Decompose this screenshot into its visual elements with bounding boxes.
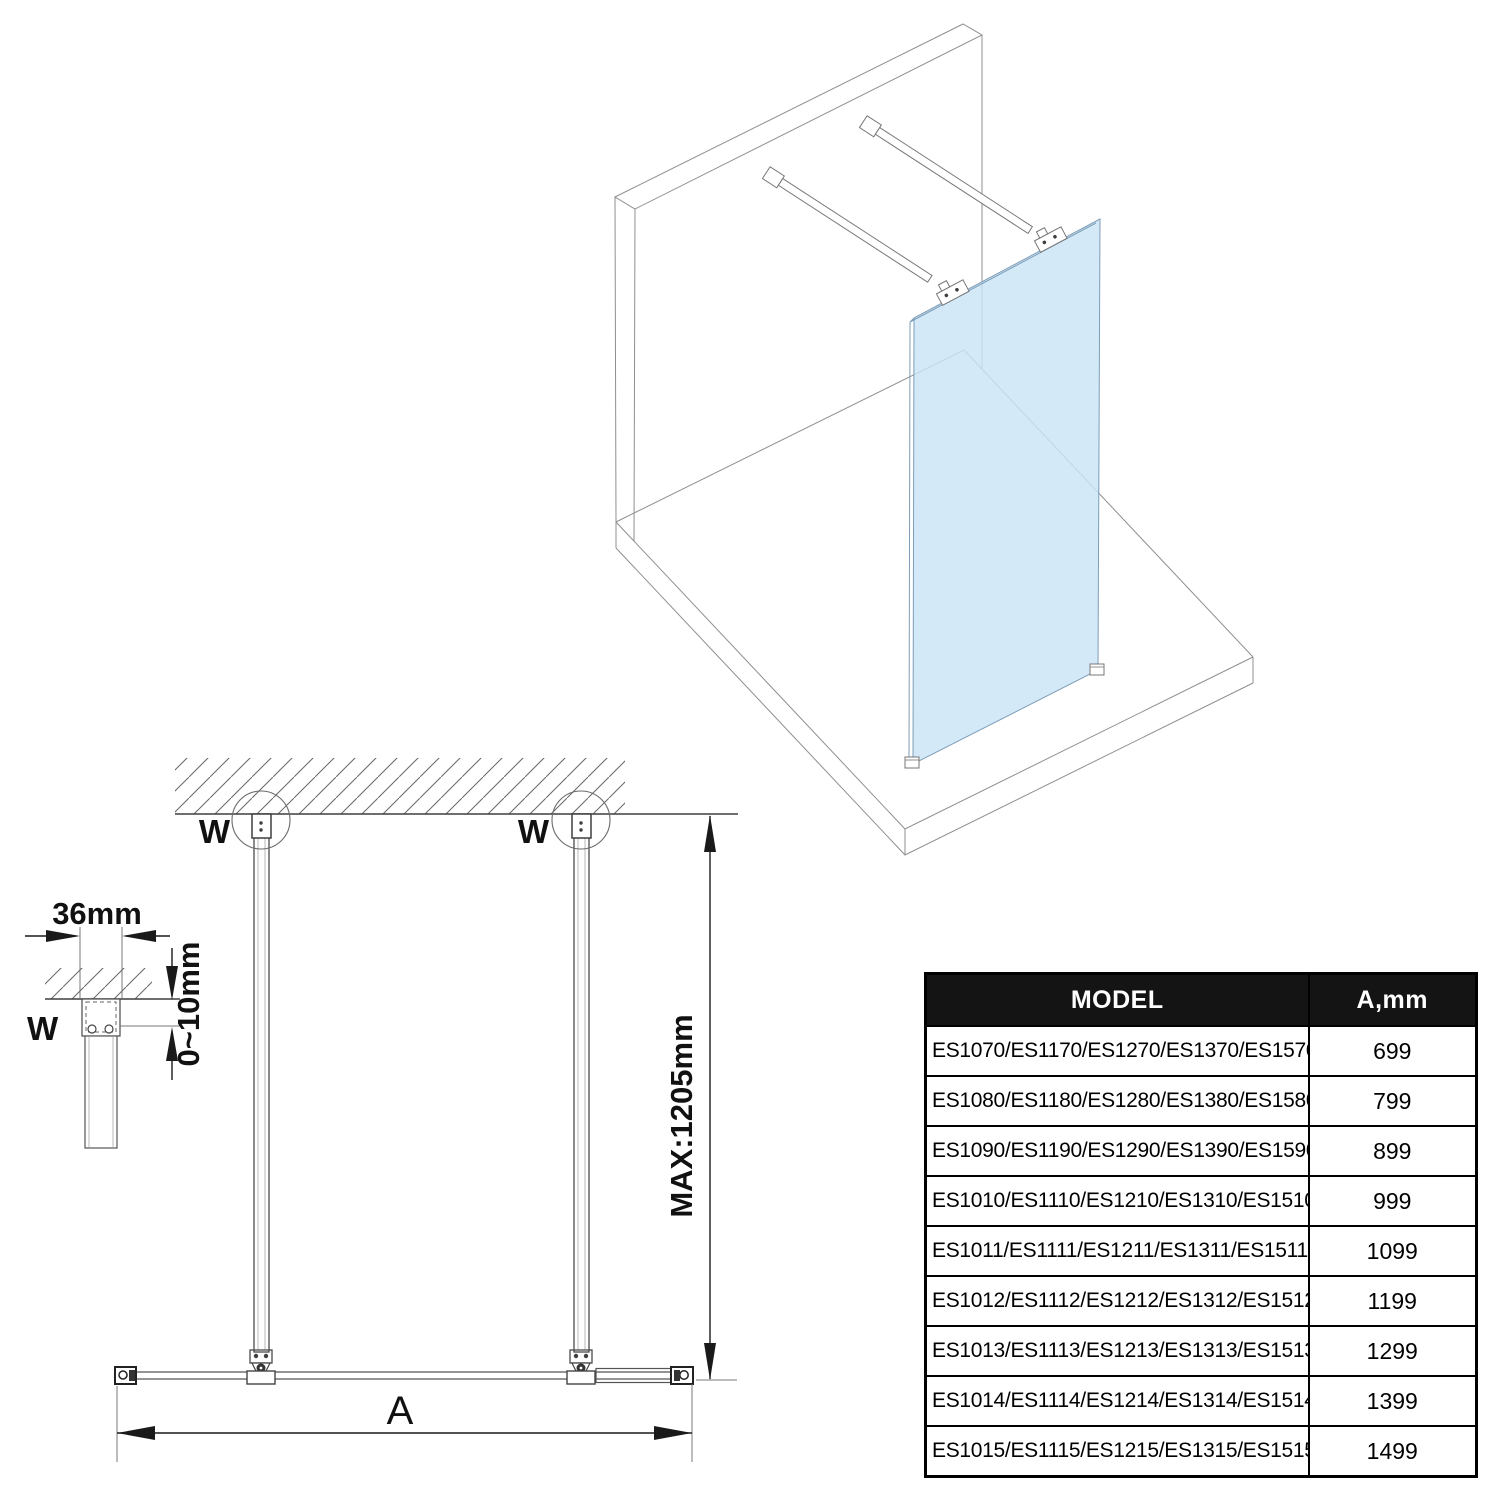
model-size-table: MODEL A,mm ES1070/ES1170/ES1270/ES1370/E…	[924, 972, 1478, 1478]
a-mm-cell: 1499	[1309, 1426, 1477, 1477]
wall-hatch-detail	[45, 968, 152, 999]
support-post-right	[574, 837, 589, 1352]
model-cell: ES1070/ES1170/ES1270/ES1370/ES1570	[926, 1026, 1309, 1076]
support-bar-left-3d	[762, 167, 933, 285]
model-cell: ES1014/ES1114/ES1214/ES1314/ES1514	[926, 1376, 1309, 1426]
glass-foot-right-3d	[1090, 664, 1104, 675]
model-cell: ES1080/ES1180/ES1280/ES1380/ES1580	[926, 1076, 1309, 1126]
plan-view: W W MAX:1205mm	[115, 758, 738, 1462]
adjustment-label: 0~10mm	[171, 942, 206, 1067]
table-row: ES1010/ES1110/ES1210/ES1310/ES1510 999	[926, 1176, 1477, 1226]
wall-fixing-label-right: W	[518, 813, 550, 850]
model-cell: ES1090/ES1190/ES1290/ES1390/ES1590	[926, 1126, 1309, 1176]
a-mm-cell: 699	[1309, 1026, 1477, 1076]
model-cell: ES1012/ES1112/ES1212/ES1312/ES1512	[926, 1276, 1309, 1326]
a-mm-cell: 799	[1309, 1076, 1477, 1126]
wall-profile-sleeve	[596, 1369, 674, 1383]
wall-hatch	[175, 758, 625, 814]
a-mm-cell: 1099	[1309, 1226, 1477, 1276]
end-cap-left	[115, 1367, 136, 1384]
model-cell: ES1010/ES1110/ES1210/ES1310/ES1510	[926, 1176, 1309, 1226]
table-row: ES1013/ES1113/ES1213/ES1313/ES1513 1299	[926, 1326, 1477, 1376]
a-mm-cell: 899	[1309, 1126, 1477, 1176]
end-cap-right	[671, 1367, 693, 1384]
model-cell: ES1015/ES1115/ES1215/ES1315/ES1515	[926, 1426, 1309, 1477]
table-row: ES1090/ES1190/ES1290/ES1390/ES1590 899	[926, 1126, 1477, 1176]
max-depth-label: MAX:1205mm	[664, 1014, 699, 1217]
installation-diagram-page: W W MAX:1205mm	[0, 0, 1500, 1500]
a-mm-column-header: A,mm	[1309, 974, 1477, 1027]
table-row: ES1014/ES1114/ES1214/ES1314/ES1514 1399	[926, 1376, 1477, 1426]
width-label: A	[387, 1389, 414, 1433]
table-row: ES1015/ES1115/ES1215/ES1315/ES1515 1499	[926, 1426, 1477, 1477]
table-row: ES1012/ES1112/ES1212/ES1312/ES1512 1199	[926, 1276, 1477, 1326]
model-cell: ES1011/ES1111/ES1211/ES1311/ES1511	[926, 1226, 1309, 1276]
glass-panel-3d	[909, 219, 1100, 766]
bracket-width-label: 36mm	[52, 896, 142, 931]
table-header-row: MODEL A,mm	[926, 974, 1477, 1027]
glass-foot-left-3d	[905, 757, 919, 768]
wall-fixing-label-detail: W	[27, 1010, 59, 1047]
glass-panel-plan	[115, 1367, 693, 1384]
bracket-detail	[82, 999, 120, 1036]
table-row: ES1011/ES1111/ES1211/ES1311/ES1511 1099	[926, 1226, 1477, 1276]
max-depth-dimension	[696, 815, 737, 1380]
support-post-left	[254, 837, 269, 1352]
glass-connector-right	[567, 1350, 595, 1384]
table-row: ES1080/ES1180/ES1280/ES1380/ES1580 799	[926, 1076, 1477, 1126]
a-mm-cell: 1399	[1309, 1376, 1477, 1426]
support-bar-right-3d	[859, 116, 1034, 236]
model-column-header: MODEL	[926, 974, 1309, 1027]
wall-fixing-label-left: W	[199, 813, 231, 850]
bracket-detail-view: 36mm W 0~10mm	[25, 896, 206, 1148]
model-cell: ES1013/ES1113/ES1213/ES1313/ES1513	[926, 1326, 1309, 1376]
isometric-view	[615, 24, 1253, 855]
table-row: ES1070/ES1170/ES1270/ES1370/ES1570 699	[926, 1026, 1477, 1076]
a-mm-cell: 1299	[1309, 1326, 1477, 1376]
a-mm-cell: 1199	[1309, 1276, 1477, 1326]
support-post-detail	[85, 1036, 117, 1148]
a-mm-cell: 999	[1309, 1176, 1477, 1226]
glass-connector-left	[247, 1350, 275, 1384]
